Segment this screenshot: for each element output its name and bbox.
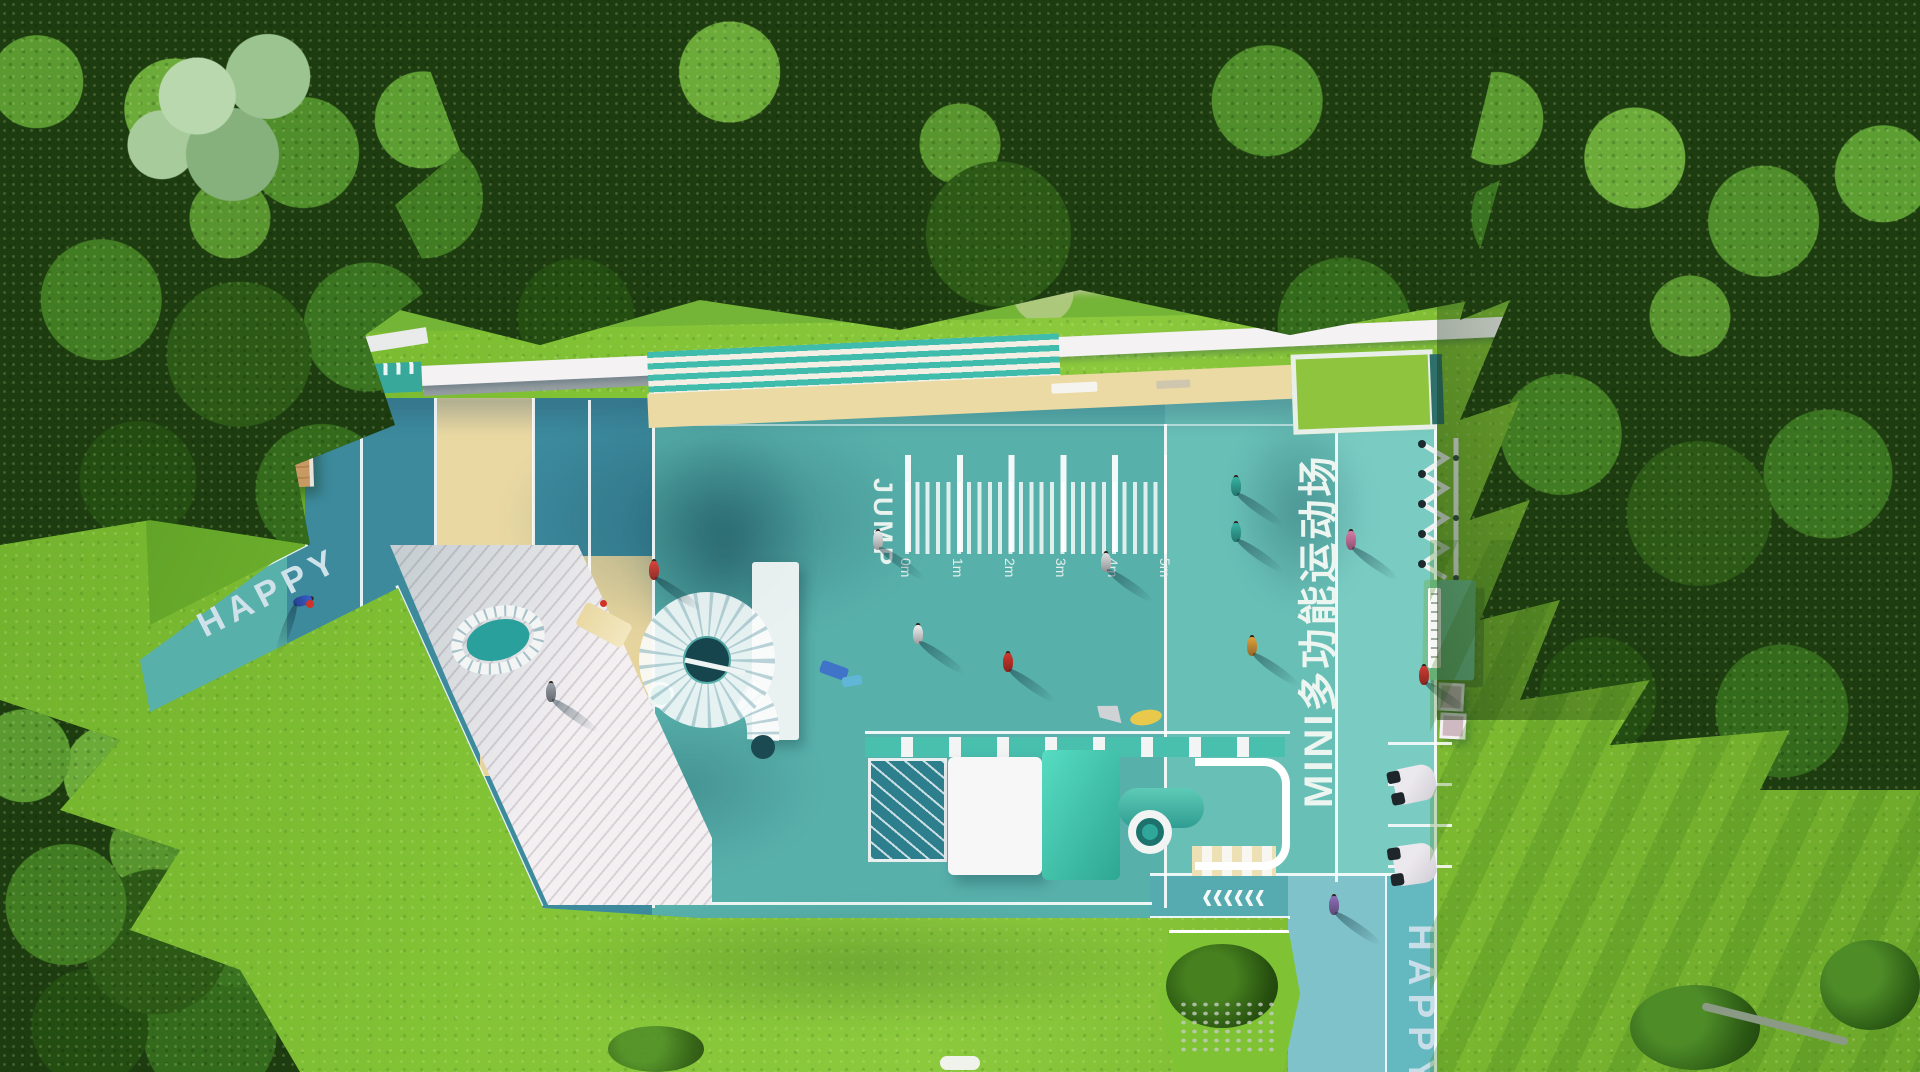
person-figure [910,622,926,648]
person-figure [646,558,662,584]
pebbles [1178,1000,1274,1052]
person-figure [1244,634,1260,660]
court-line [652,424,1338,426]
aerial-playground-render: JUMP 0m 1m 2m 3m 4m 5m MINI多功能运动场 HAPPY … [0,0,1920,1072]
white-canopy [948,757,1042,875]
pale-tree [115,18,350,213]
slatted-canopy [868,758,947,862]
ruler-mark-1m: 1m [950,558,966,577]
bush [608,1026,704,1072]
court-title-text: MINI多功能运动场 [1286,454,1344,808]
person-figure [1228,474,1244,500]
ruler-mark-5m: 5m [1157,558,1173,577]
person-figure [543,680,559,706]
spiral-tube-slide [615,565,825,775]
person-figure [1228,520,1244,546]
bush [1630,985,1760,1070]
ruler-mark-3m: 3m [1053,558,1069,577]
ruler-mark-2m: 2m [1002,558,1018,577]
teal-canopy [1042,750,1120,880]
person-figure [1326,893,1342,919]
person-figure [1343,528,1359,554]
person-figure [870,528,886,554]
soft-shadow [540,900,1180,1030]
scroll-handle[interactable] [940,1056,980,1070]
play-structure-rail [865,731,1290,734]
train-engine-frame [1195,758,1290,870]
tube-opening [1128,810,1172,854]
bush [1820,940,1920,1030]
person-figure [1098,550,1114,576]
red-ball [306,600,314,608]
chevron-left-markings: ‹‹‹‹‹‹ [1202,874,1265,920]
lane-line [1385,875,1387,1072]
jump-ruler-minor-marks [905,482,1167,554]
roof-lawn-square [1291,349,1436,434]
red-flag-dot [600,600,607,607]
climbing-ring [442,596,554,684]
person-figure [1000,650,1016,676]
